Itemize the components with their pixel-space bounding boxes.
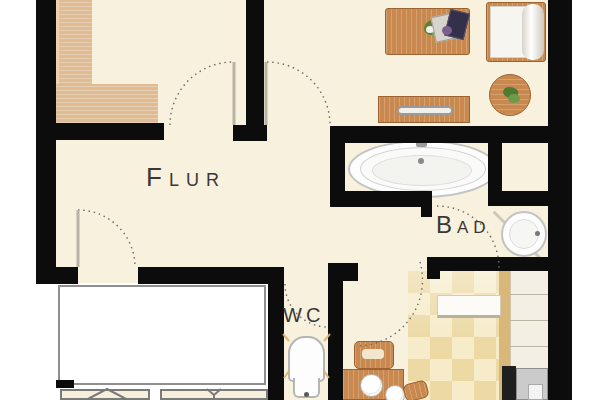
wall-wc-left (268, 267, 284, 400)
bathtub-drain (418, 158, 424, 164)
daybed-roll (522, 4, 544, 60)
wall-bath-door-stub (421, 191, 432, 217)
plate-small (385, 385, 405, 400)
stove-dark-unit (502, 366, 516, 400)
wall-center-cap (233, 125, 267, 141)
wall-wc-right (328, 280, 343, 400)
wardrobe-horizontal (56, 84, 158, 123)
wall-kitchen-top (427, 257, 548, 271)
room-label-hallway: Flur (146, 162, 226, 193)
counter-divider (510, 346, 548, 347)
room-label-wc: WC (283, 304, 324, 327)
floor-plan: Flur Bad WC (0, 0, 600, 400)
kitchen-rug (437, 295, 501, 318)
wall-wc-cap (328, 263, 358, 281)
cooktop-pan (528, 384, 543, 400)
wall-hallway-bottom-left (36, 267, 78, 284)
plant-leaves-light (508, 94, 520, 103)
wall-outer-left (36, 0, 56, 284)
wall-hallway-bottom-right (138, 267, 284, 284)
plate-large (360, 374, 383, 397)
wall-terrace-corner-tick (56, 380, 74, 388)
daybed-mattress (490, 6, 526, 58)
counter-divider (510, 294, 548, 295)
flower-violet (442, 26, 452, 35)
washbasin-faucet-dot (535, 231, 540, 236)
wall-outer-right (548, 0, 572, 400)
wall-kitchen-top-stub (427, 257, 440, 279)
kitchen-chair-slot (362, 349, 384, 359)
wall-niche-bottom (488, 191, 548, 206)
wall-topleft-room-bottom (36, 123, 164, 140)
room-label-bathroom: Bad (436, 211, 491, 239)
floor-hallway (52, 123, 343, 284)
terrace-furniture-y (160, 389, 268, 400)
wall-center-column (246, 0, 264, 126)
toilet-tank (288, 336, 325, 382)
sideboard-handle (397, 106, 453, 115)
wall-bath-bottom (335, 191, 432, 207)
wall-livingroom-bottom (330, 126, 548, 143)
toilet-flush-dot (304, 392, 309, 397)
terrace-room-outline (58, 285, 266, 385)
counter-divider (510, 320, 548, 321)
terrace-furniture-chevron (60, 389, 150, 400)
